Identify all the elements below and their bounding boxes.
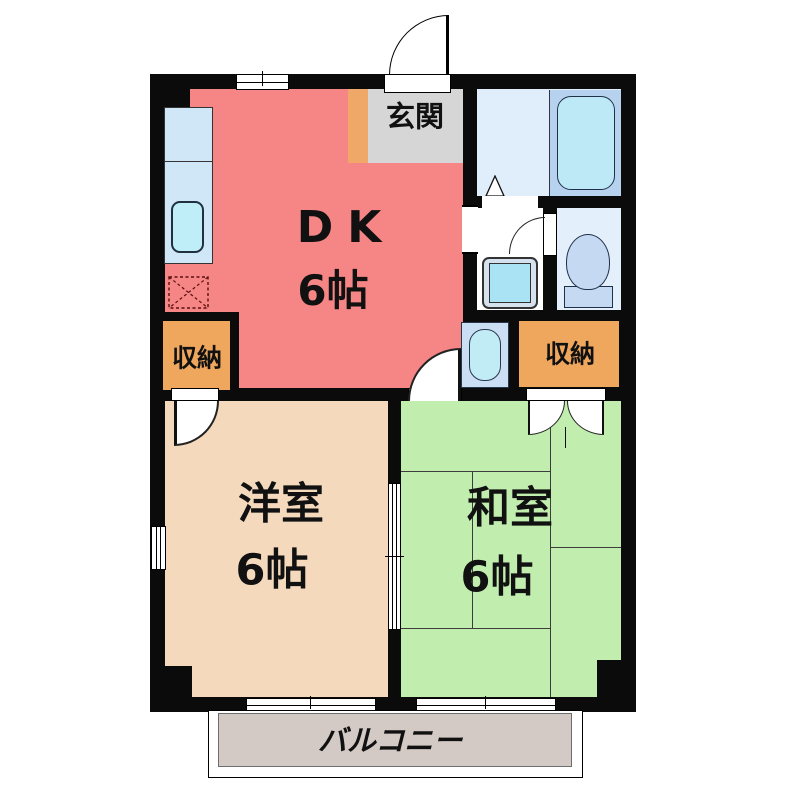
kitchen-counter-divider [164,161,213,162]
storage-door-center-line [565,427,566,448]
japanese-room-floor [401,401,621,698]
entrance-door-threshold [384,74,451,93]
tatami-line [401,628,550,629]
kitchen-sink [171,201,204,253]
washroom-door-opening [462,205,478,254]
tatami-line [401,471,550,472]
japanese-room-name: 和室 [467,488,553,531]
dk-room-name: DK [297,206,396,250]
dk-room-size: 6帖 [297,270,368,312]
vanity-sink-basin [489,263,531,303]
window-line [247,705,375,706]
western-room-name: 洋室 [238,484,324,527]
wall-corner-bottom-right [597,660,636,712]
storage-left-label: 収納 [172,346,222,371]
bathroom-door-icon [484,175,506,197]
wall-corner-top-left [150,74,190,110]
western-door-threshold [171,388,219,401]
window-west-wall [151,526,166,570]
storage-right-label: 収納 [545,342,595,367]
tatami-line [550,401,551,698]
window-tick [385,556,404,557]
window-line [160,527,161,569]
bathroom-door-threshold [482,196,538,208]
window-top [236,74,289,90]
window-tick [262,71,263,86]
window-line [417,705,555,706]
entrance-step [348,88,368,163]
entrance-label: 玄関 [386,103,444,132]
floorplan: 収納 収納 バルコニー DK 6帖 玄関 洋室 [0,0,800,786]
western-room-size: 6帖 [236,550,309,593]
toilet-door-leaf [543,213,557,256]
toilet-bowl-icon [566,234,610,290]
bathtub-icon [557,96,615,190]
window-tick [310,696,311,709]
tatami-line [550,547,621,548]
wall-corner-bottom-left [150,666,192,712]
storage-double-door-threshold [526,388,606,401]
balcony-label: バルコニー [318,727,462,756]
sliding-door-partition [388,483,401,630]
window-line [156,527,157,569]
entrance-door-swing [389,15,449,75]
gas-range-icon [168,276,209,309]
japanese-room-size: 6帖 [461,557,534,600]
window-tick [485,696,486,709]
washing-machine-icon [469,329,501,381]
